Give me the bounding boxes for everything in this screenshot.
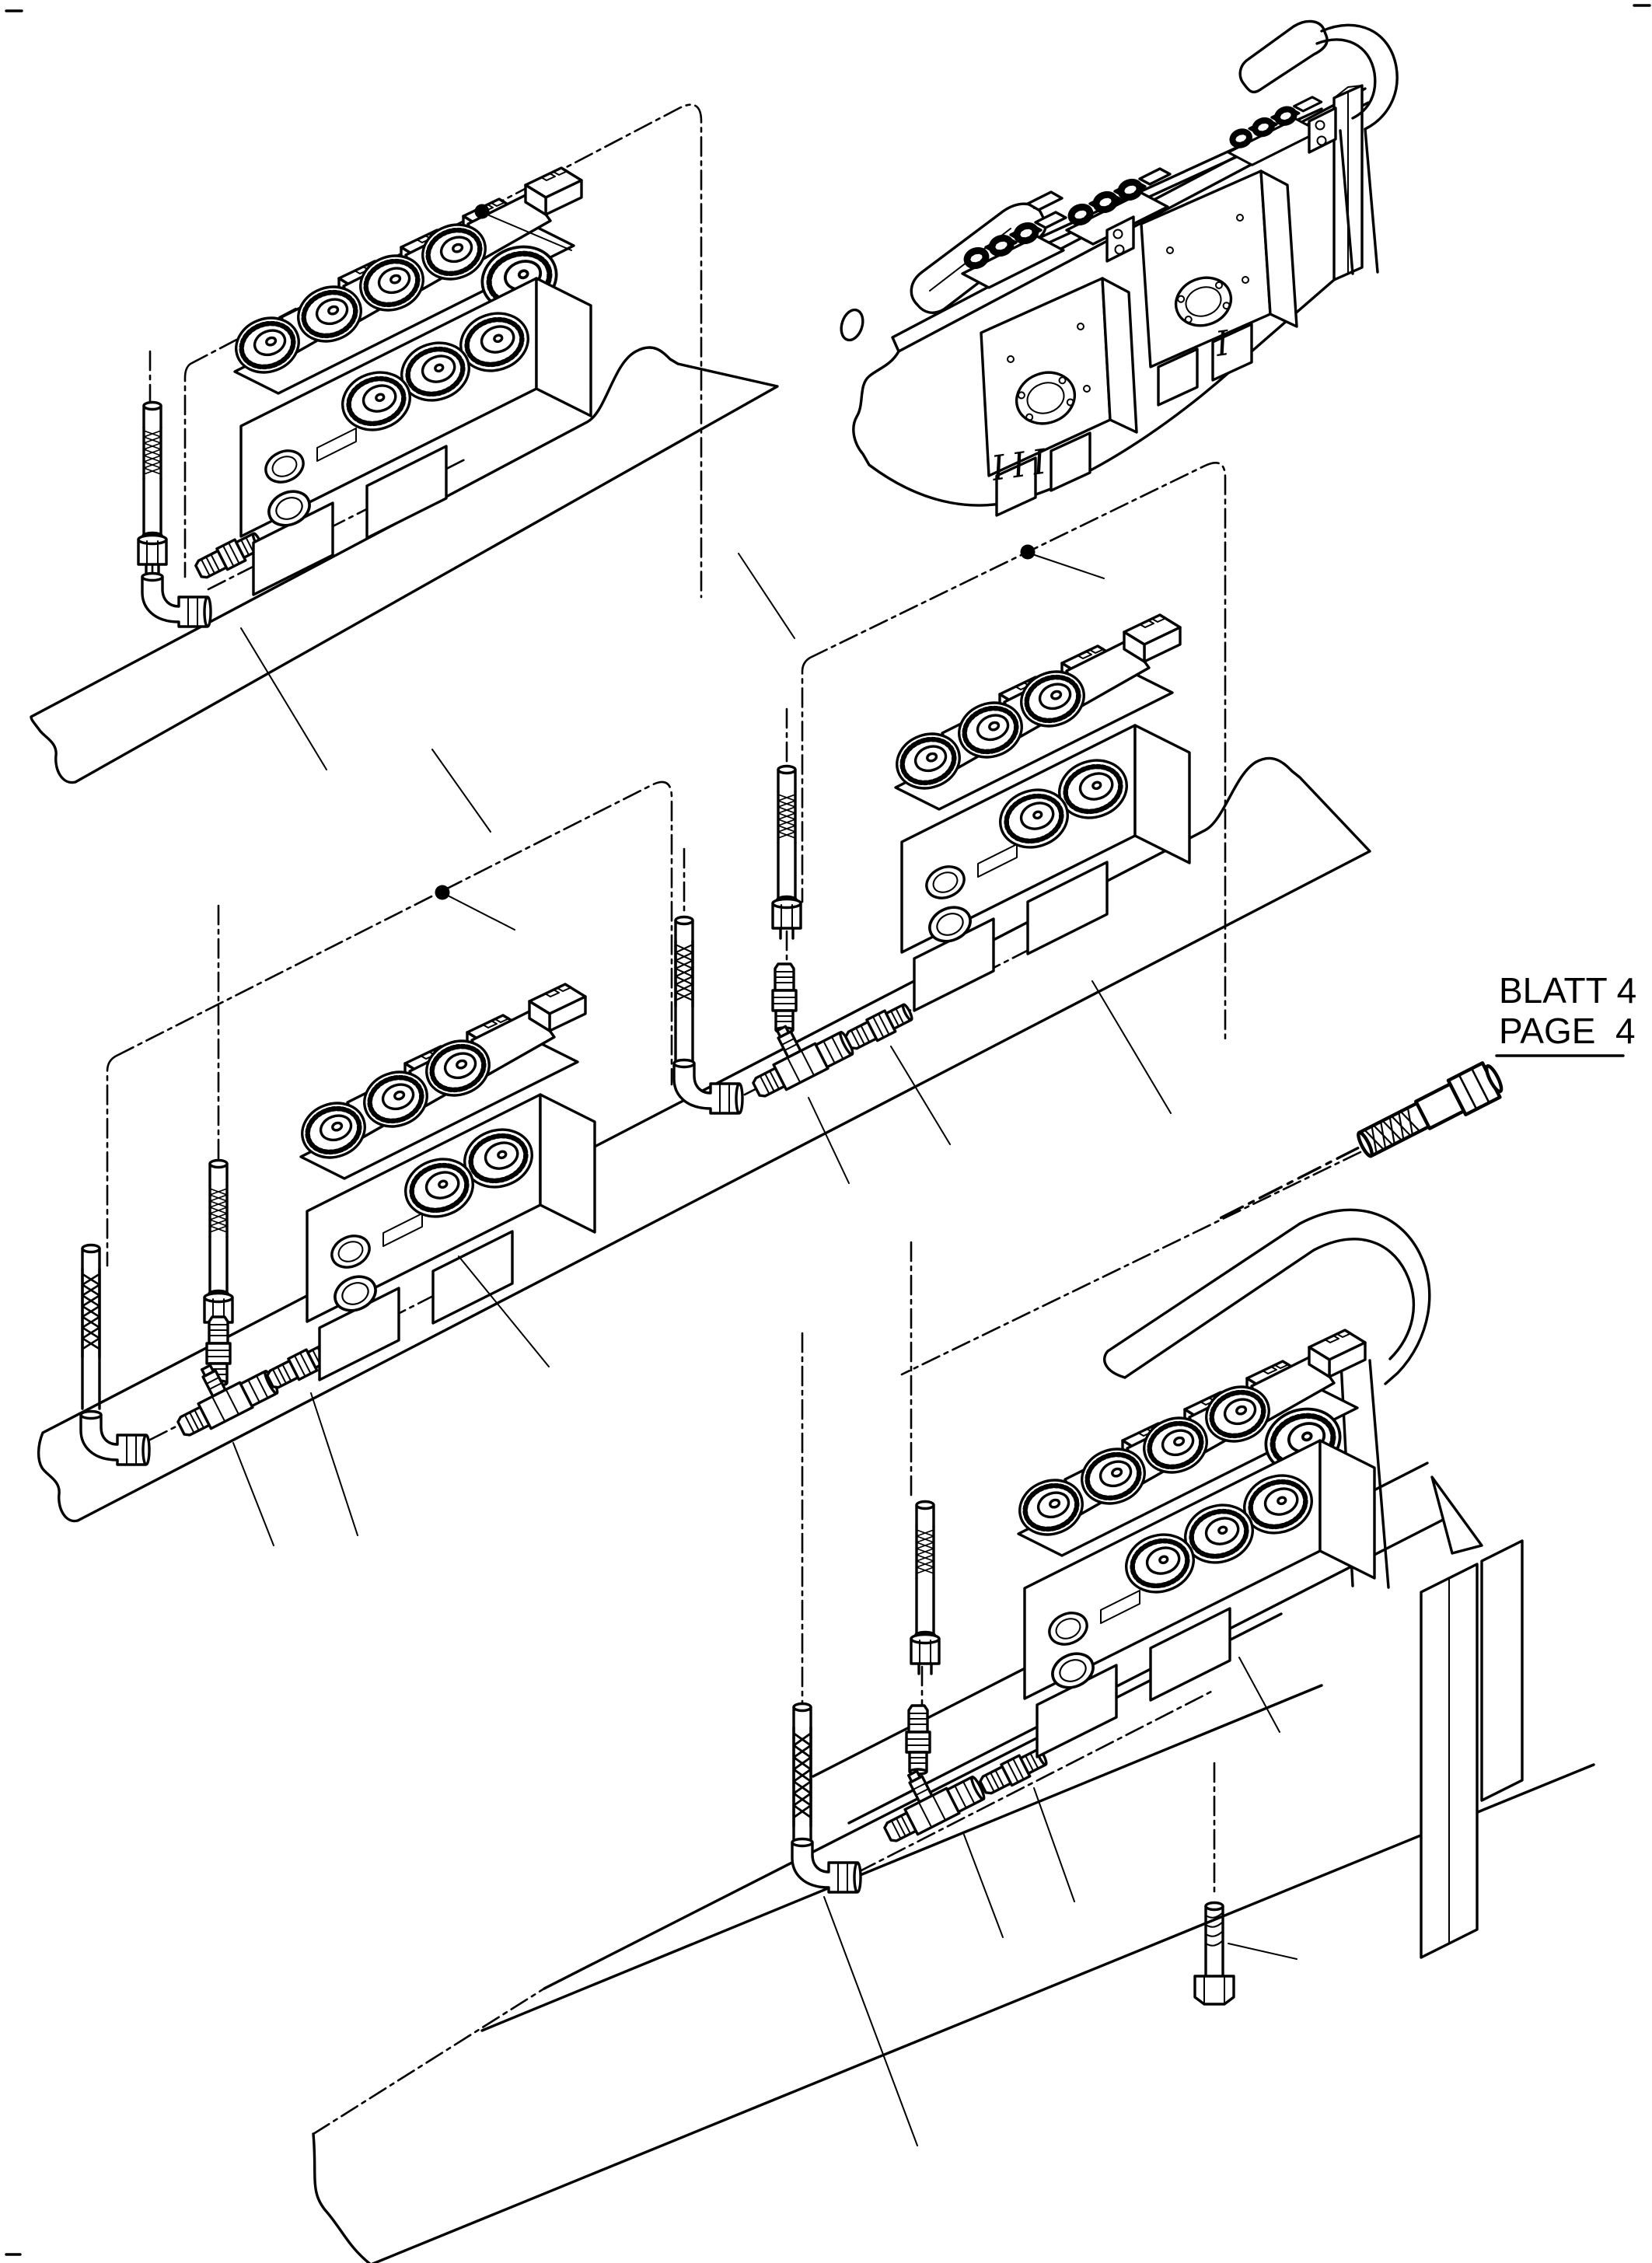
sheet-reference: BLATT 4 PAGE 4: [1497, 970, 1636, 1056]
solenoid-valve-bank: [295, 984, 595, 1380]
tee-fitting: [737, 1004, 855, 1102]
braided-hose-long: [82, 1245, 100, 1409]
vertical-nipple: [773, 964, 796, 1032]
callout-dot: [435, 885, 450, 900]
solenoid-valve-bank: [889, 615, 1189, 1011]
vertical-nipple: [906, 1706, 930, 1774]
parts-diagram-page: III I: [0, 0, 1652, 2263]
solenoid-valve-bank: [229, 168, 591, 595]
solenoid-valve-bank: [1012, 1330, 1374, 1757]
position-marker-iii: III: [988, 441, 1055, 489]
callout-dot: [475, 204, 490, 219]
sheet-label-german: BLATT 4: [1499, 970, 1636, 1011]
leader-lines: [809, 981, 1171, 1183]
callout-dot: [1021, 545, 1036, 560]
leader-lines: [241, 554, 795, 832]
assembly-middle-right: [674, 463, 1225, 1183]
elbow-fitting: [142, 574, 211, 627]
hex-bolt: [1195, 1903, 1234, 2005]
callout-leader: [449, 896, 515, 930]
braided-hose-left: [676, 917, 693, 1063]
callout-leader: [1035, 555, 1104, 578]
braided-hose-left: [794, 1704, 811, 1842]
assembly-top-left: [31, 105, 795, 832]
machine-overview: III I: [837, 21, 1397, 515]
parts-diagram-canvas: III I: [0, 0, 1652, 2263]
braided-hose: [773, 767, 801, 939]
sheet-label-english: PAGE 4: [1499, 1011, 1636, 1051]
braided-hose: [204, 1161, 232, 1333]
braided-hose: [911, 1502, 939, 1675]
assembly-bottom: [313, 1152, 1594, 2263]
braided-hose: [138, 403, 166, 575]
mounting-plate: [313, 1614, 1594, 2263]
straight-fitting: [843, 1001, 915, 1053]
hose-to-page-4: [1212, 1060, 1506, 1235]
elbow-fitting: [792, 1839, 861, 1893]
elbow-fitting: [81, 1412, 149, 1465]
control-lever-right: [1240, 21, 1327, 92]
